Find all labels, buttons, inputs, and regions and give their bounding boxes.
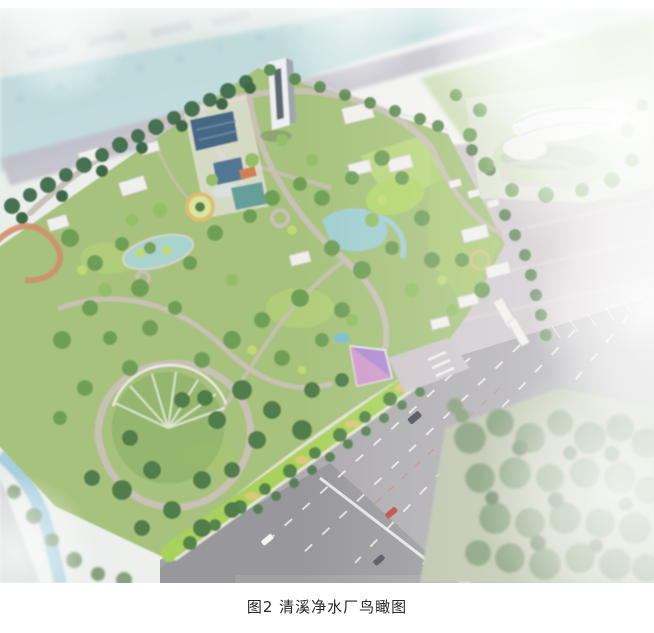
haze-overlay xyxy=(0,8,654,583)
figure: 图2 清溪净水厂鸟瞰图 xyxy=(0,0,654,617)
figure-caption: 图2 清溪净水厂鸟瞰图 xyxy=(0,597,654,617)
aerial-rendering-image xyxy=(0,8,654,583)
